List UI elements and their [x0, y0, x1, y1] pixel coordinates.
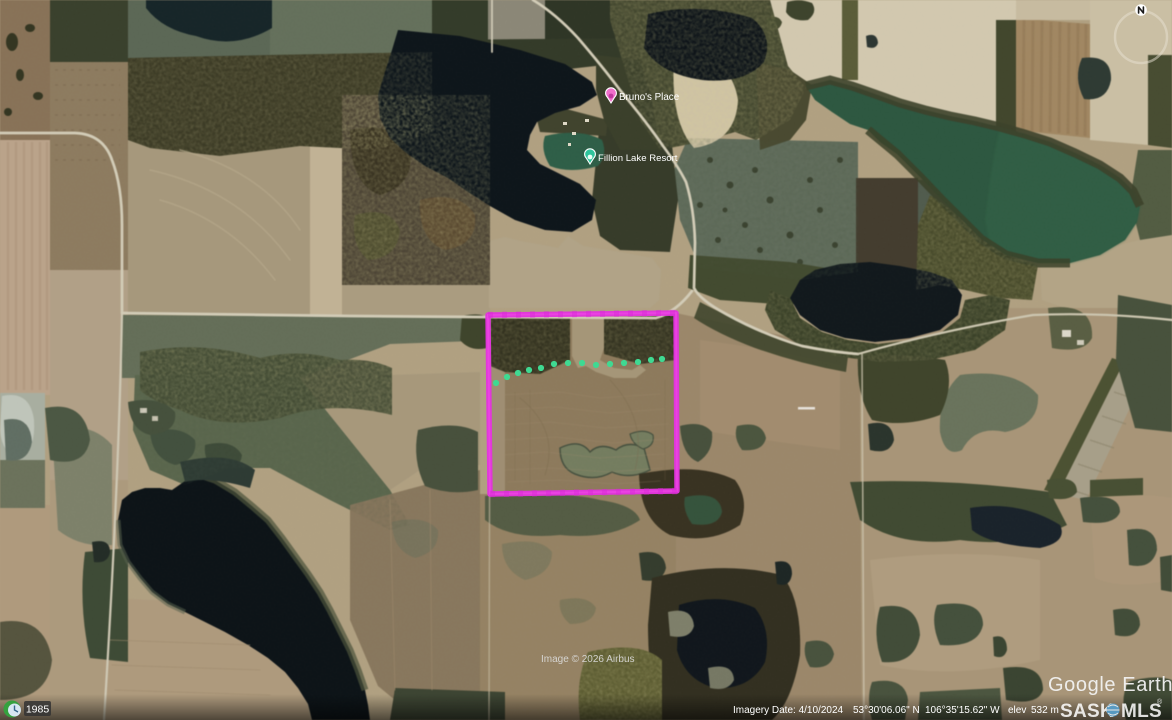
svg-text:®: ®: [1157, 698, 1163, 706]
svg-text:106°35'15.62" W: 106°35'15.62" W: [925, 705, 1000, 716]
svg-text:Imagery Date: 4/10/2024: Imagery Date: 4/10/2024: [733, 705, 844, 716]
svg-text:Google Earth: Google Earth: [1048, 674, 1172, 696]
svg-text:MLS: MLS: [1121, 701, 1162, 720]
svg-text:532 m: 532 m: [1031, 705, 1059, 716]
svg-text:Fillion Lake Resort: Fillion Lake Resort: [598, 153, 678, 164]
svg-text:Image © 2026 Airbus: Image © 2026 Airbus: [541, 654, 635, 665]
svg-text:53°30'06.06" N: 53°30'06.06" N: [853, 705, 920, 716]
svg-text:elev: elev: [1008, 705, 1026, 716]
svg-text:Bruno's Place: Bruno's Place: [619, 92, 680, 103]
svg-text:1985: 1985: [26, 704, 50, 716]
svg-text:SASK: SASK: [1060, 701, 1114, 720]
